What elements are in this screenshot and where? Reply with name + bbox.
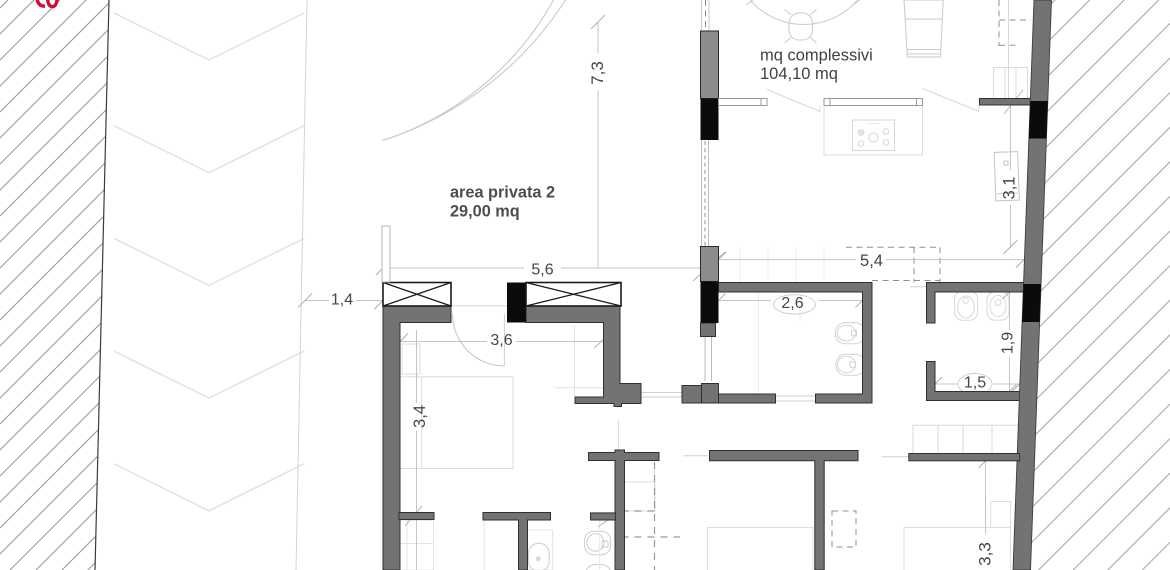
svg-text:1,9: 1,9: [1000, 332, 1017, 354]
svg-text:area privata 2: area privata 2: [450, 184, 555, 202]
svg-text:104,10 mq: 104,10 mq: [760, 65, 838, 83]
svg-text:1,4: 1,4: [331, 292, 353, 309]
svg-text:3,6: 3,6: [490, 332, 512, 349]
svg-text:5,6: 5,6: [531, 262, 553, 279]
svg-text:3,1: 3,1: [1001, 177, 1019, 200]
svg-text:3,4: 3,4: [411, 405, 429, 428]
svg-text:29,00 mq: 29,00 mq: [450, 203, 520, 221]
svg-text:3,3: 3,3: [976, 542, 995, 566]
svg-text:7,3: 7,3: [588, 61, 607, 85]
svg-text:1,5: 1,5: [964, 375, 986, 392]
svg-text:5,4: 5,4: [860, 252, 883, 270]
svg-text:mq complessivi: mq complessivi: [760, 47, 873, 65]
svg-text:2,6: 2,6: [781, 295, 803, 312]
